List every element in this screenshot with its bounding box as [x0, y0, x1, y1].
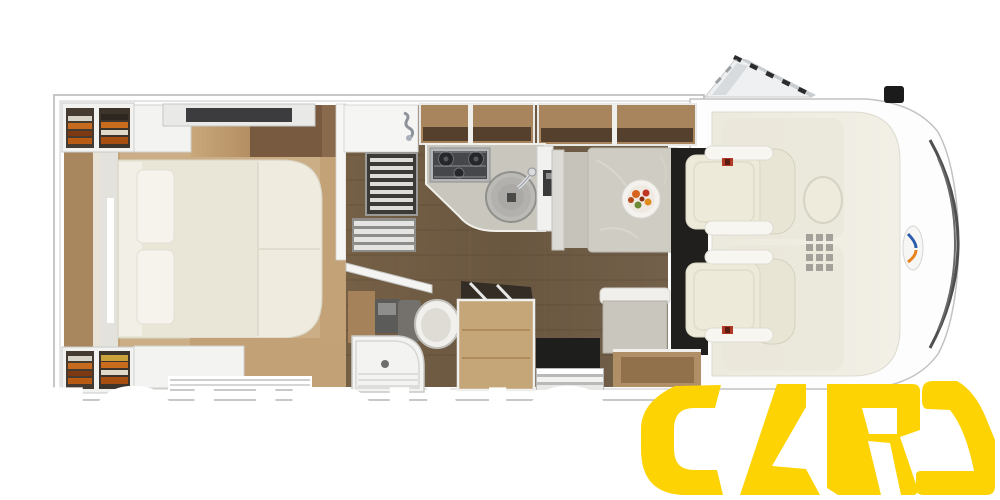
svg-text:TOURING: TOURING [2, 354, 620, 500]
